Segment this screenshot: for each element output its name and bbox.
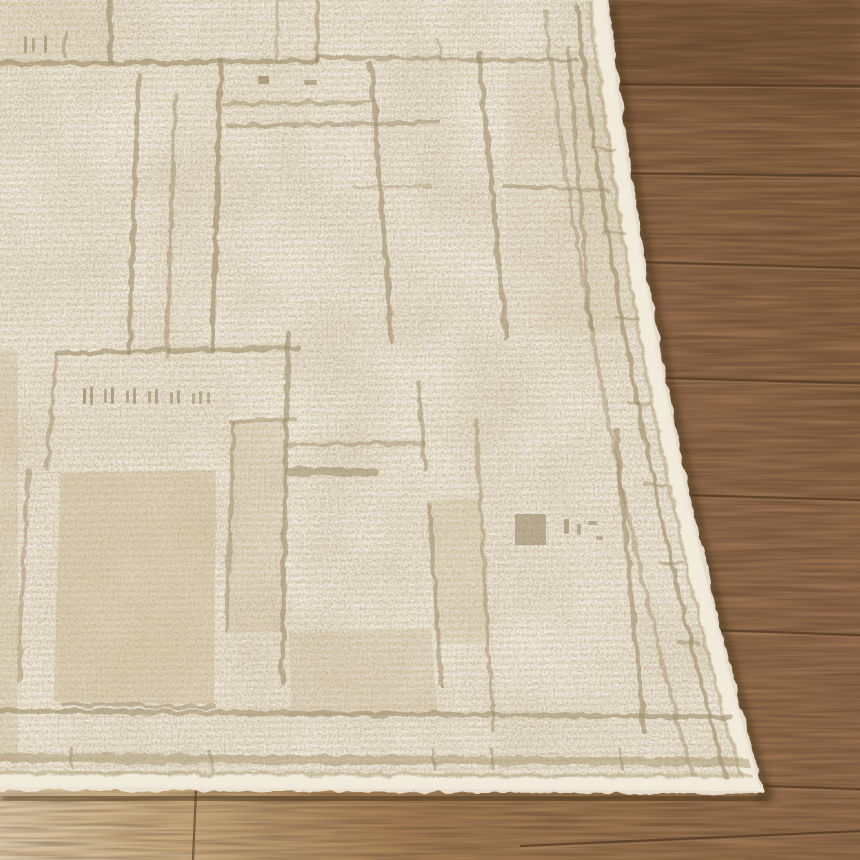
border-dash	[615, 318, 637, 320]
pattern-block	[289, 629, 437, 716]
border-dash	[628, 402, 650, 404]
pattern-block	[54, 470, 216, 704]
pattern-mark	[207, 392, 210, 404]
border-dash	[492, 749, 494, 769]
pattern-block	[226, 420, 287, 633]
pattern-mark	[104, 389, 107, 403]
border-dash	[678, 642, 700, 644]
edge-binding-fuzz	[0, 787, 761, 791]
border-dash	[432, 748, 434, 768]
border-band	[0, 781, 757, 785]
pattern-mark	[577, 524, 581, 535]
scene-canvas	[0, 0, 860, 860]
pattern-block	[0, 0, 110, 64]
pattern-line	[317, 0, 318, 61]
pattern-mark	[170, 392, 173, 404]
border-dash	[593, 148, 615, 150]
pattern-mark	[304, 80, 317, 85]
pattern-mark	[155, 389, 158, 404]
pattern-mark	[83, 388, 86, 404]
rug-bottom-edge-shadow	[0, 797, 766, 800]
rug-product-photo	[0, 0, 860, 860]
pattern-mark	[596, 536, 603, 540]
border-dash	[660, 562, 682, 564]
border-band	[0, 758, 748, 762]
pattern-mark	[177, 390, 180, 404]
pattern-mark	[32, 38, 35, 52]
pattern-mark	[199, 391, 202, 404]
pattern-line	[438, 40, 440, 59]
pattern-mark	[111, 387, 114, 404]
pattern-mark	[90, 386, 93, 405]
pattern-mark	[44, 35, 47, 53]
border-dash	[70, 748, 72, 768]
pattern-line	[288, 443, 424, 445]
pattern-line	[65, 31, 66, 56]
pattern-line	[352, 186, 432, 187]
border-dash	[620, 750, 622, 770]
pattern-mark	[133, 388, 136, 404]
pattern-mark	[24, 36, 27, 53]
border-dash	[210, 750, 212, 770]
pattern-mark	[515, 514, 546, 545]
border-dash	[644, 484, 666, 486]
pattern-line	[290, 471, 376, 473]
pattern-mark	[192, 393, 195, 404]
pattern-line	[0, 61, 318, 64]
pattern-mark	[258, 76, 269, 84]
pattern-line	[110, 0, 111, 63]
pattern-mark	[588, 521, 597, 525]
pattern-line	[225, 102, 373, 104]
pattern-mark	[148, 391, 151, 403]
pattern-block	[0, 350, 18, 762]
pattern-mark	[564, 519, 569, 534]
pattern-mark	[126, 390, 129, 403]
border-dash	[603, 232, 625, 234]
